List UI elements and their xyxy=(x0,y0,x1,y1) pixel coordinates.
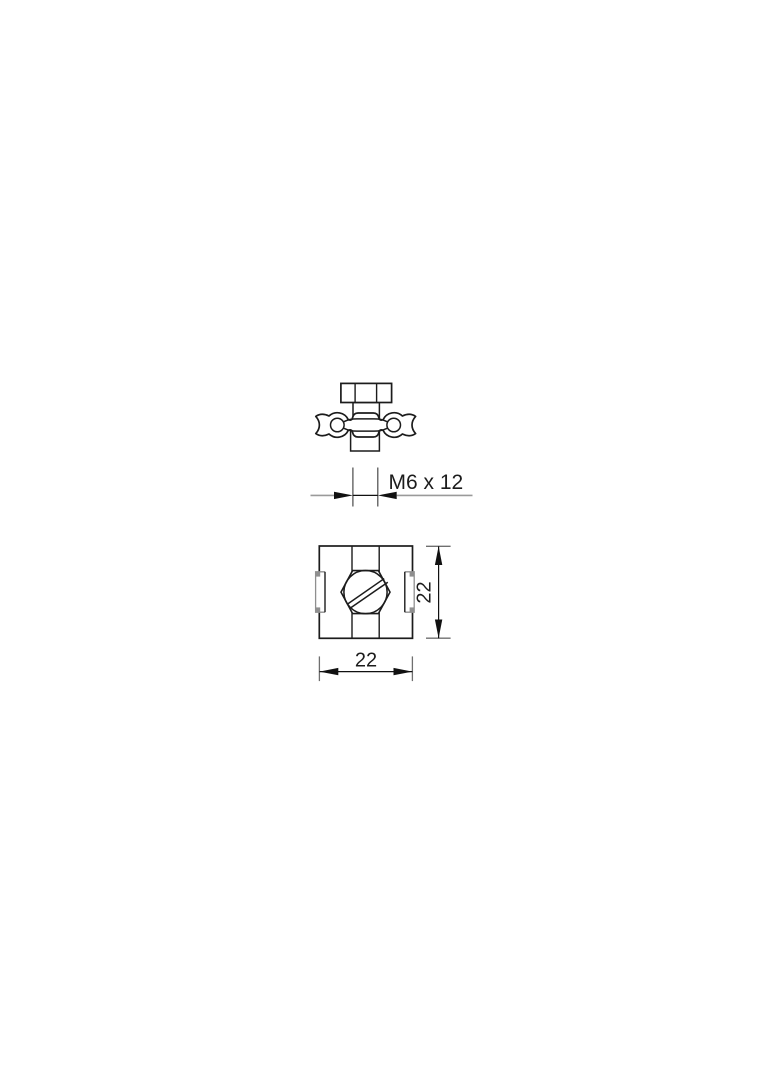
plan-view xyxy=(316,546,415,638)
dim-label-width: 22 xyxy=(355,650,377,672)
dim-label-thread: M6 x 12 xyxy=(389,471,464,494)
arrowhead xyxy=(319,668,338,675)
hex-head-side xyxy=(341,383,392,402)
arrowhead xyxy=(394,668,413,675)
technical-drawing-canvas: M6 x 12 xyxy=(0,0,784,1066)
side-view xyxy=(316,383,416,451)
plate-slot-left xyxy=(316,572,325,612)
dimension-thread: M6 x 12 xyxy=(311,468,473,507)
dimension-width: 22 xyxy=(319,650,412,682)
dim-label-height: 22 xyxy=(414,581,436,603)
arrowhead xyxy=(435,546,442,565)
arrowhead xyxy=(435,620,442,639)
dimension-height: 22 xyxy=(414,546,451,638)
drawing-svg: M6 x 12 xyxy=(0,0,784,1066)
arrowhead xyxy=(334,492,353,499)
